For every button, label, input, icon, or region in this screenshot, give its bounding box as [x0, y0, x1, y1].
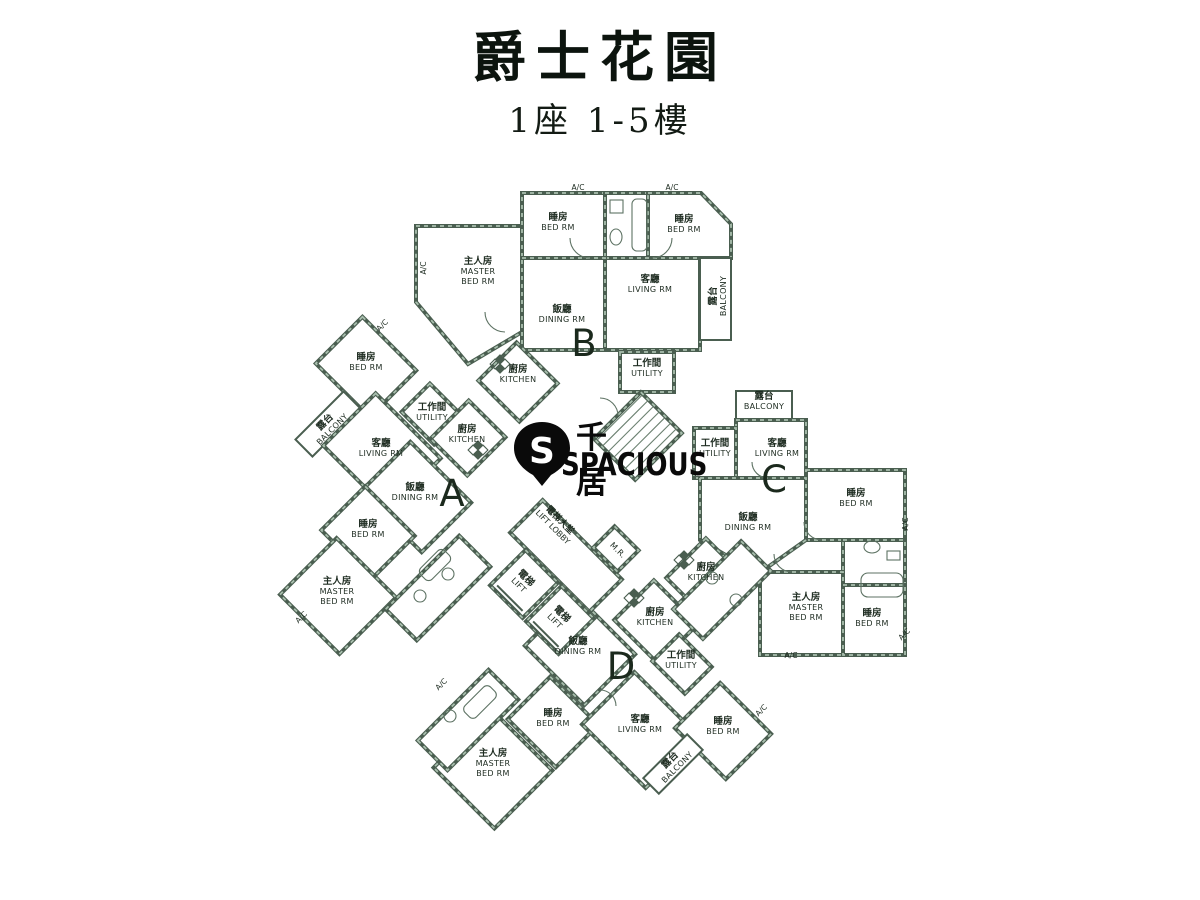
- room-label-a-utility: 工作間UTILITY: [416, 401, 448, 422]
- ac-label: A/C: [666, 183, 679, 192]
- room-label-d-master-bed: 主人房MASTERBED RM: [476, 747, 511, 778]
- floorplan-page: 爵士花園 1座 1-5樓: [0, 0, 1200, 900]
- unit-letter-A: A: [439, 472, 464, 515]
- room-c-bath: [843, 540, 905, 585]
- ac-label: A/C: [753, 702, 768, 717]
- ac-label: A/C: [901, 518, 910, 531]
- room-b-living: [605, 258, 700, 350]
- room-label-a-master-bed: 主人房MASTERBED RM: [320, 575, 355, 606]
- room-label-d-utility: 工作間UTILITY: [665, 649, 697, 670]
- room-label-c-utility: 工作間UTILITY: [699, 437, 731, 458]
- room-label-b-utility: 工作間UTILITY: [631, 357, 663, 378]
- room-b-master-bed: [416, 226, 522, 364]
- room-label-c-master-bed: 主人房MASTERBED RM: [789, 591, 824, 622]
- unit-letter-D: D: [607, 645, 636, 688]
- ac-label: A/C: [785, 651, 798, 660]
- floorplan-svg: 主人房MASTERBED RM睡房BED RM睡房BED RM客廳LIVING …: [0, 0, 1200, 900]
- unit-letter-C: C: [761, 458, 787, 501]
- ac-label: A/C: [572, 183, 585, 192]
- unit-letter-B: B: [571, 322, 596, 365]
- room-b-bath: [605, 193, 648, 258]
- ac-label: A/C: [433, 676, 448, 691]
- ac-label: A/C: [419, 262, 428, 275]
- room-outlines: [280, 193, 905, 828]
- room-label-b-master-bed: 主人房MASTERBED RM: [461, 255, 496, 286]
